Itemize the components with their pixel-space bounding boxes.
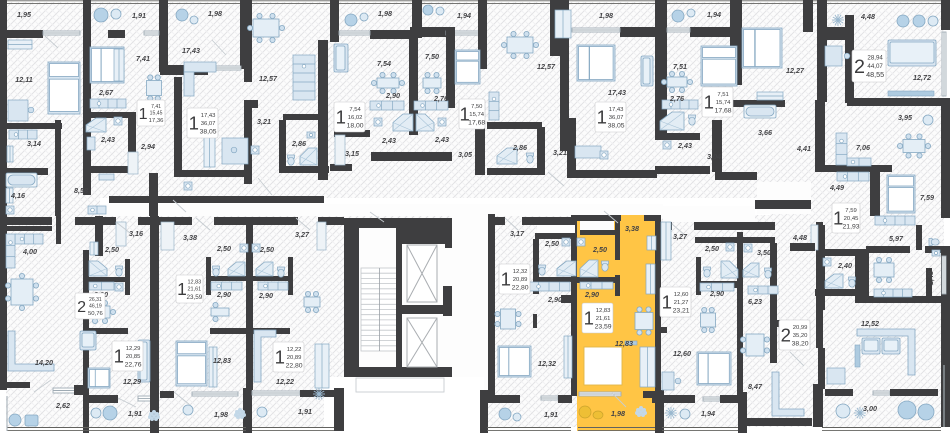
svg-text:12,32: 12,32 — [538, 359, 556, 368]
svg-text:5,97: 5,97 — [889, 234, 904, 243]
svg-text:2,43: 2,43 — [381, 136, 396, 145]
svg-text:20,89: 20,89 — [513, 277, 528, 283]
svg-text:17,43: 17,43 — [201, 113, 216, 119]
svg-text:2,50: 2,50 — [104, 245, 119, 254]
svg-text:3,15: 3,15 — [345, 149, 360, 158]
svg-text:1,91: 1,91 — [298, 407, 312, 416]
svg-text:8,47: 8,47 — [748, 382, 763, 391]
svg-text:7,54: 7,54 — [377, 59, 391, 68]
svg-text:12,11: 12,11 — [15, 75, 32, 84]
svg-text:1,91: 1,91 — [128, 409, 142, 418]
svg-text:1: 1 — [275, 347, 285, 368]
svg-text:1,98: 1,98 — [611, 409, 625, 418]
svg-text:2,94: 2,94 — [140, 142, 155, 151]
svg-text:2,76: 2,76 — [433, 94, 449, 103]
svg-text:2,90: 2,90 — [258, 291, 273, 300]
svg-text:3,14: 3,14 — [27, 139, 41, 148]
svg-text:35,20: 35,20 — [793, 333, 808, 339]
svg-text:12,83: 12,83 — [596, 308, 611, 314]
svg-text:2,86: 2,86 — [512, 143, 528, 152]
svg-text:2,50: 2,50 — [216, 244, 231, 253]
svg-text:2: 2 — [77, 298, 86, 316]
svg-text:21,61: 21,61 — [596, 316, 611, 322]
svg-text:7,54: 7,54 — [349, 107, 361, 113]
svg-text:12,72: 12,72 — [913, 73, 931, 82]
svg-text:1,98: 1,98 — [599, 11, 613, 20]
svg-text:12,32: 12,32 — [513, 269, 528, 275]
svg-text:7,59: 7,59 — [845, 208, 856, 214]
svg-text:12,83: 12,83 — [615, 339, 633, 348]
svg-text:3,16: 3,16 — [129, 229, 144, 238]
svg-text:1: 1 — [704, 92, 714, 113]
svg-text:1,95: 1,95 — [17, 10, 32, 19]
svg-text:1: 1 — [597, 107, 607, 128]
svg-text:7,50: 7,50 — [471, 104, 483, 110]
svg-text:2,43: 2,43 — [677, 141, 692, 150]
svg-text:44,07: 44,07 — [867, 63, 883, 70]
svg-text:48,55: 48,55 — [866, 70, 884, 79]
svg-text:12,22: 12,22 — [287, 347, 302, 353]
svg-text:12,29: 12,29 — [126, 346, 141, 352]
svg-text:1: 1 — [189, 113, 199, 134]
svg-text:2,90: 2,90 — [547, 295, 562, 304]
svg-text:6,23: 6,23 — [748, 297, 762, 306]
svg-text:12,27: 12,27 — [786, 66, 805, 75]
svg-text:7,50: 7,50 — [425, 52, 439, 61]
svg-text:1,91: 1,91 — [544, 410, 558, 419]
svg-text:22,80: 22,80 — [286, 363, 303, 370]
svg-text:2,90: 2,90 — [709, 289, 724, 298]
svg-text:3,04: 3,04 — [707, 152, 721, 161]
svg-text:3,17: 3,17 — [510, 229, 525, 238]
svg-text:7,41: 7,41 — [136, 54, 150, 63]
svg-text:3,21: 3,21 — [257, 117, 271, 126]
svg-text:2: 2 — [854, 56, 865, 78]
svg-text:12,29: 12,29 — [123, 377, 141, 386]
svg-text:2,50: 2,50 — [592, 245, 607, 254]
svg-text:12,83: 12,83 — [187, 279, 201, 285]
svg-text:2,43: 2,43 — [434, 135, 449, 144]
svg-text:1: 1 — [336, 107, 346, 128]
svg-text:8,58: 8,58 — [74, 186, 88, 195]
svg-text:20,85: 20,85 — [126, 354, 141, 360]
svg-text:12,52: 12,52 — [861, 319, 879, 328]
svg-text:2: 2 — [781, 325, 791, 346]
svg-text:50,76: 50,76 — [88, 311, 103, 317]
svg-text:2,40: 2,40 — [837, 261, 852, 270]
svg-text:4,41: 4,41 — [796, 144, 811, 153]
svg-text:28,94: 28,94 — [867, 55, 883, 62]
svg-text:3,05: 3,05 — [458, 150, 473, 159]
svg-text:2,43: 2,43 — [100, 135, 115, 144]
svg-text:23,21: 23,21 — [673, 308, 690, 315]
svg-text:3,38: 3,38 — [183, 233, 197, 242]
svg-text:17,43: 17,43 — [608, 88, 626, 97]
svg-text:4,00: 4,00 — [22, 247, 37, 256]
svg-text:1,98: 1,98 — [208, 9, 222, 18]
svg-text:17,43: 17,43 — [182, 46, 200, 55]
svg-text:7,41: 7,41 — [151, 104, 161, 110]
svg-text:1: 1 — [501, 269, 511, 290]
svg-text:3,00: 3,00 — [863, 404, 877, 413]
svg-text:21,93: 21,93 — [843, 224, 860, 231]
svg-text:38,05: 38,05 — [200, 129, 217, 136]
svg-text:2,62: 2,62 — [55, 401, 70, 410]
svg-text:12,83: 12,83 — [213, 356, 231, 365]
svg-text:12,60: 12,60 — [674, 292, 689, 298]
svg-text:1,98: 1,98 — [214, 410, 228, 419]
svg-text:1: 1 — [177, 279, 187, 299]
svg-text:16,02: 16,02 — [348, 115, 363, 121]
svg-text:12,57: 12,57 — [537, 62, 556, 71]
svg-text:36,07: 36,07 — [609, 115, 624, 121]
svg-text:12,57: 12,57 — [259, 74, 278, 83]
svg-text:46,19: 46,19 — [89, 304, 102, 310]
svg-text:4,49: 4,49 — [829, 183, 844, 192]
svg-text:1,91: 1,91 — [132, 11, 146, 20]
svg-text:3,38: 3,38 — [625, 224, 639, 233]
svg-text:3,27: 3,27 — [295, 230, 310, 239]
svg-text:1: 1 — [584, 308, 594, 329]
svg-text:1,94: 1,94 — [707, 10, 721, 19]
svg-text:38,20: 38,20 — [792, 341, 809, 348]
svg-text:7,59: 7,59 — [920, 193, 934, 202]
svg-text:23,59: 23,59 — [186, 294, 202, 301]
svg-text:18,00: 18,00 — [347, 123, 364, 130]
svg-text:17,68: 17,68 — [468, 120, 485, 127]
svg-text:14,20: 14,20 — [35, 358, 53, 367]
svg-text:1: 1 — [114, 346, 124, 367]
svg-text:20,45: 20,45 — [844, 216, 859, 222]
svg-text:4,48: 4,48 — [860, 12, 875, 21]
svg-text:4,48: 4,48 — [792, 233, 807, 242]
svg-text:17,68: 17,68 — [715, 108, 732, 115]
svg-text:7,51: 7,51 — [673, 62, 687, 71]
svg-text:2,50: 2,50 — [259, 245, 274, 254]
svg-text:22,80: 22,80 — [512, 285, 529, 292]
svg-text:3,50: 3,50 — [757, 248, 771, 257]
svg-text:1,94: 1,94 — [701, 409, 715, 418]
svg-text:4,16: 4,16 — [10, 191, 26, 200]
svg-text:1,94: 1,94 — [457, 11, 471, 20]
svg-text:2,76: 2,76 — [669, 94, 685, 103]
svg-text:3,27: 3,27 — [673, 232, 688, 241]
svg-text:38,05: 38,05 — [608, 123, 625, 130]
svg-text:1,98: 1,98 — [378, 9, 392, 18]
svg-text:2,86: 2,86 — [291, 139, 307, 148]
svg-text:1: 1 — [662, 292, 672, 313]
svg-text:7,51: 7,51 — [717, 92, 728, 98]
svg-text:12,22: 12,22 — [276, 377, 294, 386]
svg-text:1,48: 1,48 — [926, 271, 935, 285]
svg-text:3,95: 3,95 — [898, 113, 913, 122]
svg-text:36,07: 36,07 — [201, 121, 216, 127]
svg-text:17,43: 17,43 — [609, 107, 624, 113]
svg-text:2,50: 2,50 — [544, 239, 559, 248]
svg-text:23,59: 23,59 — [595, 324, 612, 331]
svg-text:15,74: 15,74 — [716, 100, 731, 106]
svg-text:22,76: 22,76 — [125, 362, 142, 369]
svg-text:21,27: 21,27 — [674, 300, 689, 306]
svg-text:2,90: 2,90 — [216, 290, 231, 299]
svg-text:1: 1 — [139, 105, 148, 123]
svg-text:21,61: 21,61 — [187, 287, 201, 293]
svg-text:15,45: 15,45 — [150, 111, 163, 117]
svg-text:15,74: 15,74 — [469, 112, 484, 118]
svg-text:20,99: 20,99 — [793, 325, 808, 331]
svg-text:2,90: 2,90 — [584, 290, 599, 299]
svg-text:2,90: 2,90 — [385, 91, 400, 100]
svg-text:3,21: 3,21 — [553, 148, 567, 157]
svg-text:17,36: 17,36 — [149, 118, 164, 124]
svg-text:7,06: 7,06 — [856, 143, 871, 152]
svg-text:2,50: 2,50 — [704, 244, 719, 253]
svg-text:26,31: 26,31 — [89, 297, 102, 303]
svg-text:12,60: 12,60 — [673, 349, 691, 358]
svg-text:20,89: 20,89 — [287, 355, 302, 361]
svg-text:2,67: 2,67 — [98, 88, 114, 97]
svg-text:3,66: 3,66 — [758, 128, 773, 137]
